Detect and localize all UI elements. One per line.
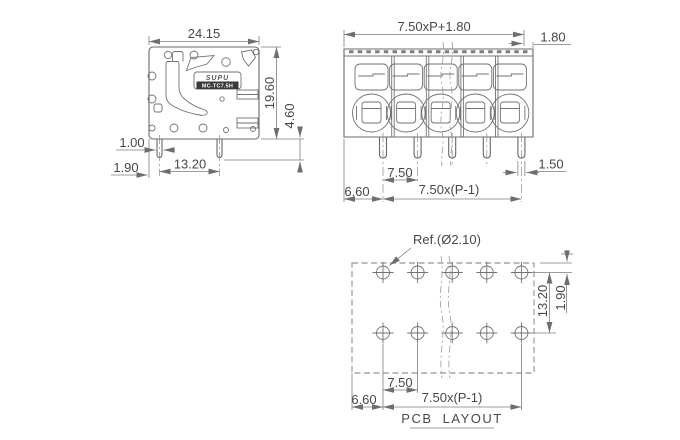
dim-row-spacing: 13.20 [535, 285, 550, 318]
pcb-layout-title-text: PCB LAYOUT [401, 411, 502, 426]
model-text: MC-TC7.5H [202, 83, 233, 89]
dim-body-width: 24.15 [188, 26, 221, 41]
pcb-hole [476, 323, 497, 344]
dim-end-margin: 1.80 [540, 30, 565, 45]
pcb-hole [407, 323, 428, 344]
dim-pin-width: 1.00 [119, 135, 144, 150]
dim-pitch-front: 7.50 [387, 165, 412, 180]
front-view-body [344, 49, 533, 137]
side-view-details [148, 49, 259, 132]
side-view-body [149, 47, 259, 139]
pcb-hole [442, 262, 463, 283]
dim-total-width: 7.50xP+1.80 [397, 19, 470, 34]
terminal-position [491, 64, 529, 132]
pcb-hole [407, 262, 428, 283]
pcb-hole [476, 262, 497, 283]
hole-reference-note: Ref.(Ø2.10) [390, 232, 481, 266]
terminal-position [387, 64, 425, 132]
dim-left-margin-front: 6.60 [344, 184, 369, 199]
front-view: 7.50xP+1.80 1.80 1.50 7.50 6.60 7.50x(P-… [344, 19, 571, 202]
dim-span-pcb: 7.50x(P-1) [422, 390, 483, 405]
terminal-positions [353, 56, 529, 137]
dim-edge-to-pin: 1.90 [113, 160, 138, 175]
side-view: SUPU MC-TC7.5H 24.15 19.60 4 [111, 26, 304, 178]
technical-drawing-canvas: SUPU MC-TC7.5H 24.15 19.60 4 [0, 0, 680, 440]
pcb-hole [442, 323, 463, 344]
pcb-hole [373, 323, 394, 344]
position-dividers [392, 56, 498, 137]
drawing-sheet: SUPU MC-TC7.5H 24.15 19.60 4 [0, 0, 680, 440]
pcb-dimensions: 1.90 13.20 7.50 6.60 7.50x(P-1) [351, 250, 573, 410]
break-lines [441, 42, 453, 166]
pcb-layout-title: PCB LAYOUT [401, 411, 502, 428]
front-view-dimensions: 7.50xP+1.80 1.80 1.50 7.50 6.60 7.50x(P-… [344, 19, 571, 202]
pcb-hole [511, 323, 532, 344]
terminal-position [353, 64, 391, 132]
terminal-position [456, 64, 494, 132]
pcb-holes [373, 262, 532, 344]
pcb-layout: Ref.(Ø2.10) 1.90 13.20 7.50 [351, 232, 573, 428]
hole-ref-text: Ref.(Ø2.10) [413, 232, 481, 247]
dim-span-front: 7.50x(P-1) [419, 182, 480, 197]
pcb-hole [511, 262, 532, 283]
dim-pitch-pcb: 7.50 [387, 375, 412, 390]
brand-text: SUPU [206, 75, 229, 82]
dim-pin-spacing: 13.20 [174, 157, 207, 172]
dim-left-margin-pcb: 6.60 [351, 392, 376, 407]
dim-body-height: 19.60 [262, 77, 277, 110]
dim-pin-width-front: 1.50 [538, 157, 563, 172]
dim-row-offset: 1.90 [553, 285, 568, 310]
brand-label: SUPU MC-TC7.5H [194, 72, 241, 89]
side-view-dimensions: 24.15 19.60 4.60 1.00 1.90 13.20 [111, 26, 304, 178]
dim-pin-length: 4.60 [282, 103, 297, 128]
